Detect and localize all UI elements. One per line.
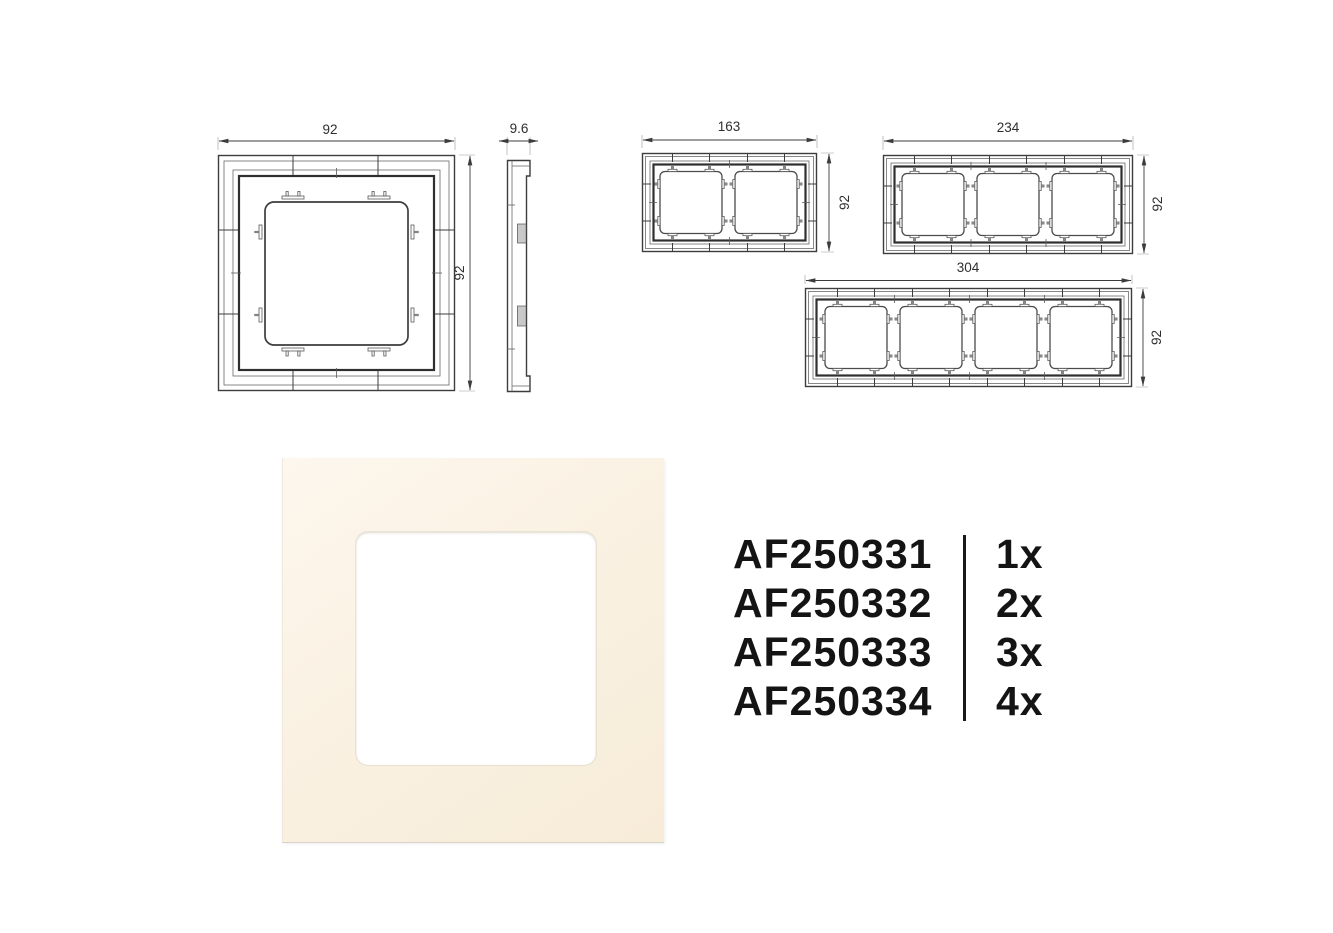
photo-module-opening [356,532,596,765]
dim-label-4gang-height: 92 [1149,330,1164,345]
dim-label-1gang-width: 92 [322,122,337,137]
dim-label-2gang-height: 92 [837,195,852,210]
dim-label-3gang-width: 234 [997,120,1020,135]
dim-label-1gang-height: 92 [452,265,467,280]
part-code: AF250332 [733,579,963,628]
drawing-side-profile [507,161,530,392]
dim-label-3gang-height: 92 [1150,196,1165,211]
drawing-4gang-front [805,288,1132,387]
part-qty: 4x [996,677,1044,726]
parts-qty-column: 1x 2x 3x 4x [966,530,1044,726]
drawing-2gang-front [642,153,817,252]
parts-code-column: AF250331 AF250332 AF250333 AF250334 [733,530,963,726]
part-code: AF250334 [733,677,963,726]
part-qty: 2x [996,579,1044,628]
product-photo-1gang-frame [282,458,664,842]
drawing-3gang-front [883,155,1133,254]
part-code: AF250333 [733,628,963,677]
drawing-1gang-front [218,155,455,391]
dim-label-4gang-width: 304 [957,260,980,275]
datasheet-page: 92 9.6 92 163 92 234 92 304 92 AF250331 … [0,0,1333,933]
part-qty: 1x [996,530,1044,579]
part-qty: 3x [996,628,1044,677]
part-code: AF250331 [733,530,963,579]
parts-list: AF250331 AF250332 AF250333 AF250334 1x 2… [733,530,1044,726]
dim-label-2gang-width: 163 [718,119,741,134]
technical-drawings: 92 9.6 92 163 92 234 92 304 92 [0,0,1333,933]
dim-label-depth: 9.6 [510,121,529,136]
